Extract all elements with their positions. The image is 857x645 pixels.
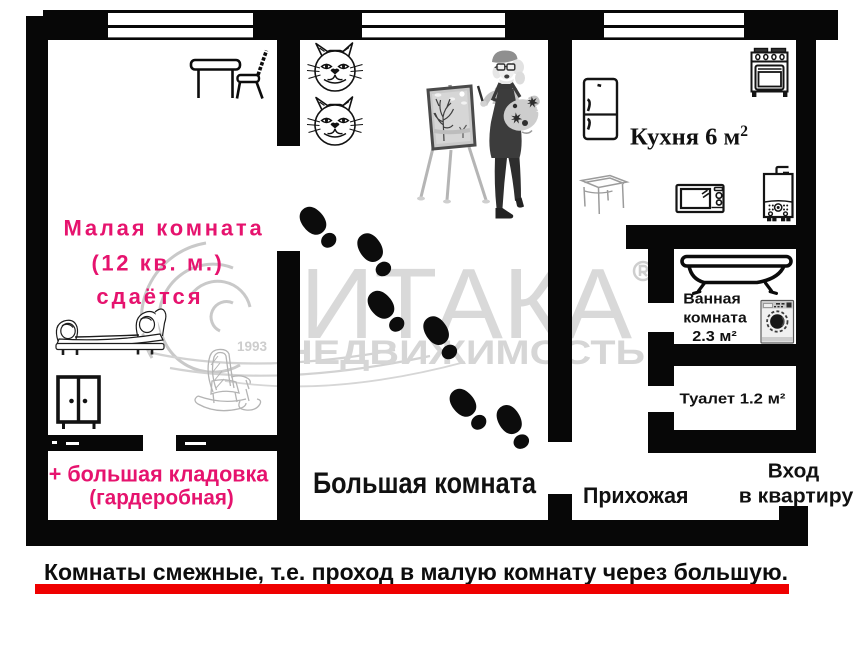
svg-text:(гардеробная): (гардеробная) [89, 487, 234, 510]
svg-text:Прихожая: Прихожая [583, 483, 689, 508]
svg-text:Кухня 6 м2: Кухня 6 м2 [630, 123, 748, 151]
svg-text:Вход: Вход [768, 461, 820, 483]
svg-text:сдаётся: сдаётся [96, 284, 203, 309]
svg-text:комната: комната [683, 310, 748, 326]
svg-text:НЕДВИЖИМОСТЬ: НЕДВИЖИМОСТЬ [283, 334, 645, 372]
svg-text:Большая комната: Большая комната [313, 467, 536, 500]
svg-text:в квартиру: в квартиру [739, 486, 854, 508]
svg-text:+ большая кладовка: + большая кладовка [49, 462, 269, 487]
svg-text:Малая комната: Малая комната [63, 216, 264, 241]
svg-text:Ванная: Ванная [683, 292, 741, 308]
svg-text:1993: 1993 [237, 339, 268, 354]
svg-text:Туалет 1.2 м²: Туалет 1.2 м² [680, 392, 786, 408]
svg-text:(12 кв. м.): (12 кв. м.) [92, 251, 225, 276]
svg-text:Комнаты смежные, т.е. проход в: Комнаты смежные, т.е. проход в малую ком… [44, 559, 788, 585]
svg-text:2.3 м²: 2.3 м² [692, 329, 737, 345]
